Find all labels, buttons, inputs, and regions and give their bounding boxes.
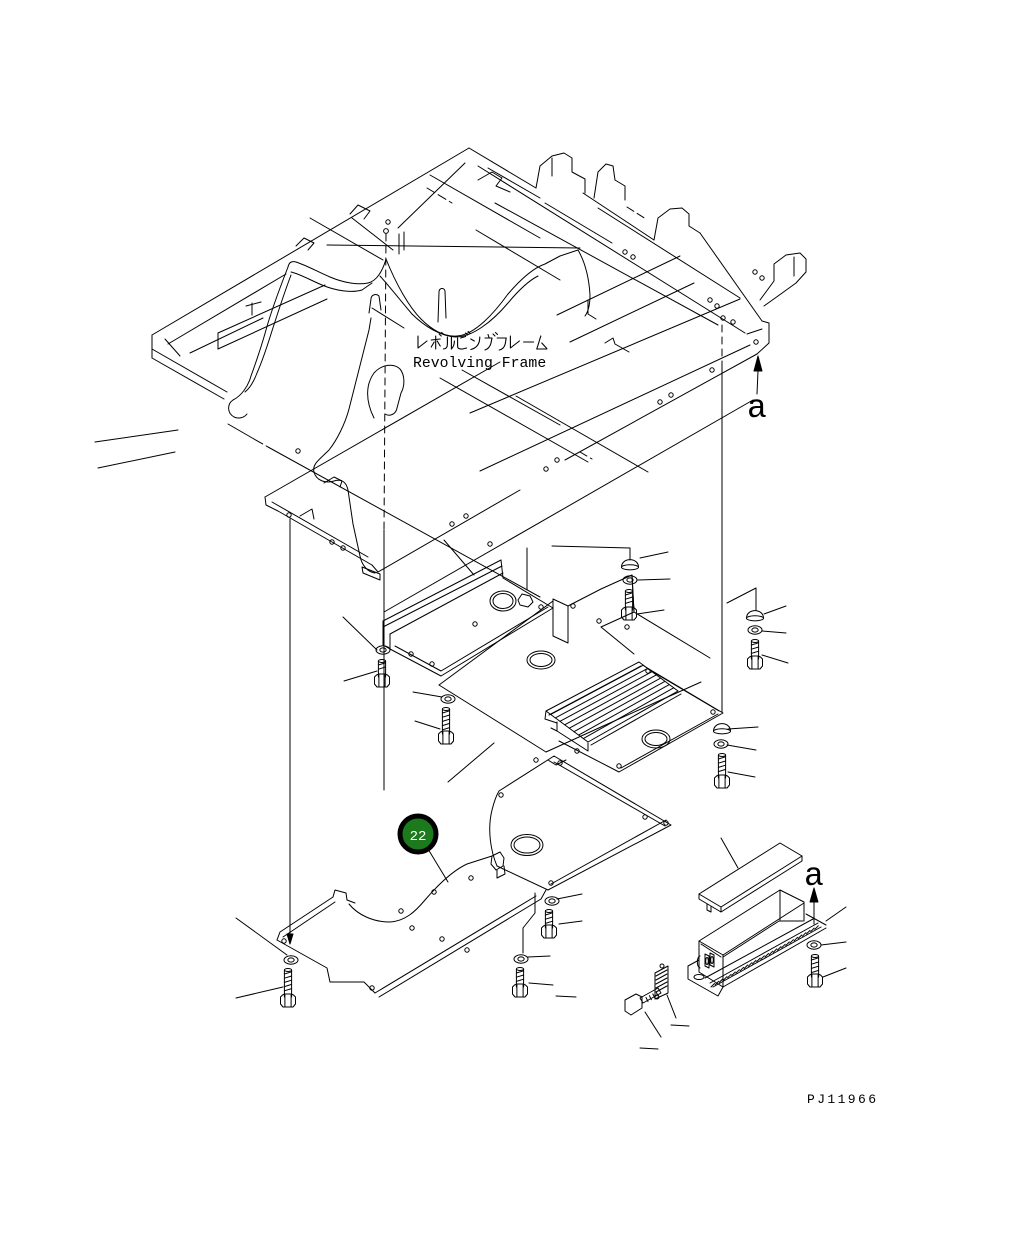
svg-text:22: 22 — [410, 829, 427, 845]
svg-text:PJ11966: PJ11966 — [807, 1092, 878, 1107]
svg-text:Revolving Frame: Revolving Frame — [413, 356, 546, 372]
svg-text:a: a — [804, 858, 824, 895]
svg-text:a: a — [747, 390, 767, 427]
